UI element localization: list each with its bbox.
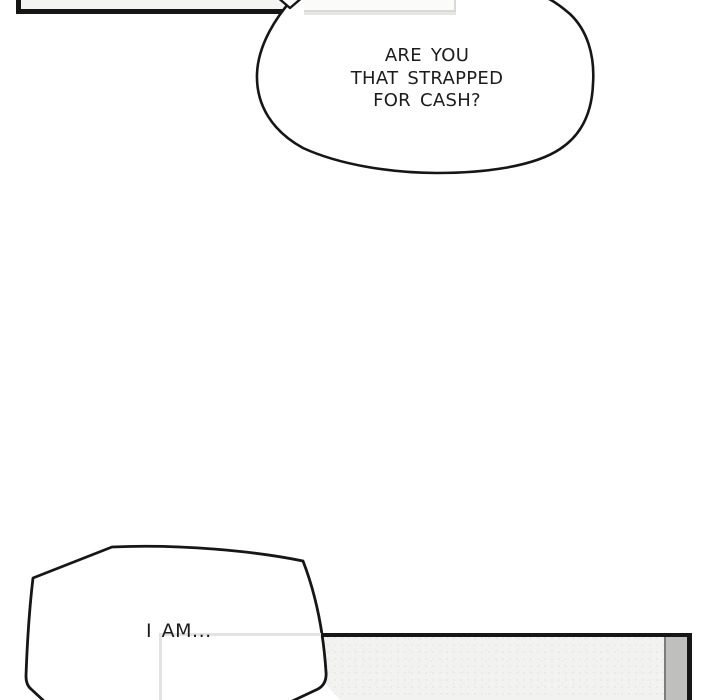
bottom-right-panel (285, 633, 692, 700)
top-bubble-text: ARE YOU THAT STRAPPED FOR CASH? (327, 45, 527, 113)
bottom-bubble-text: I AM... (146, 621, 212, 641)
panel-wall-strip (666, 637, 687, 700)
top-bubble-line-1: ARE YOU (327, 45, 527, 68)
webtoon-page: ARE YOU THAT STRAPPED FOR CASH? I AM... (0, 0, 720, 700)
inner-frame-left-border (159, 633, 162, 700)
top-white-panel (304, 0, 456, 12)
top-left-panel (16, 0, 291, 14)
top-bubble-line-3: FOR CASH? (327, 90, 527, 113)
top-bubble-line-2: THAT STRAPPED (327, 68, 527, 91)
